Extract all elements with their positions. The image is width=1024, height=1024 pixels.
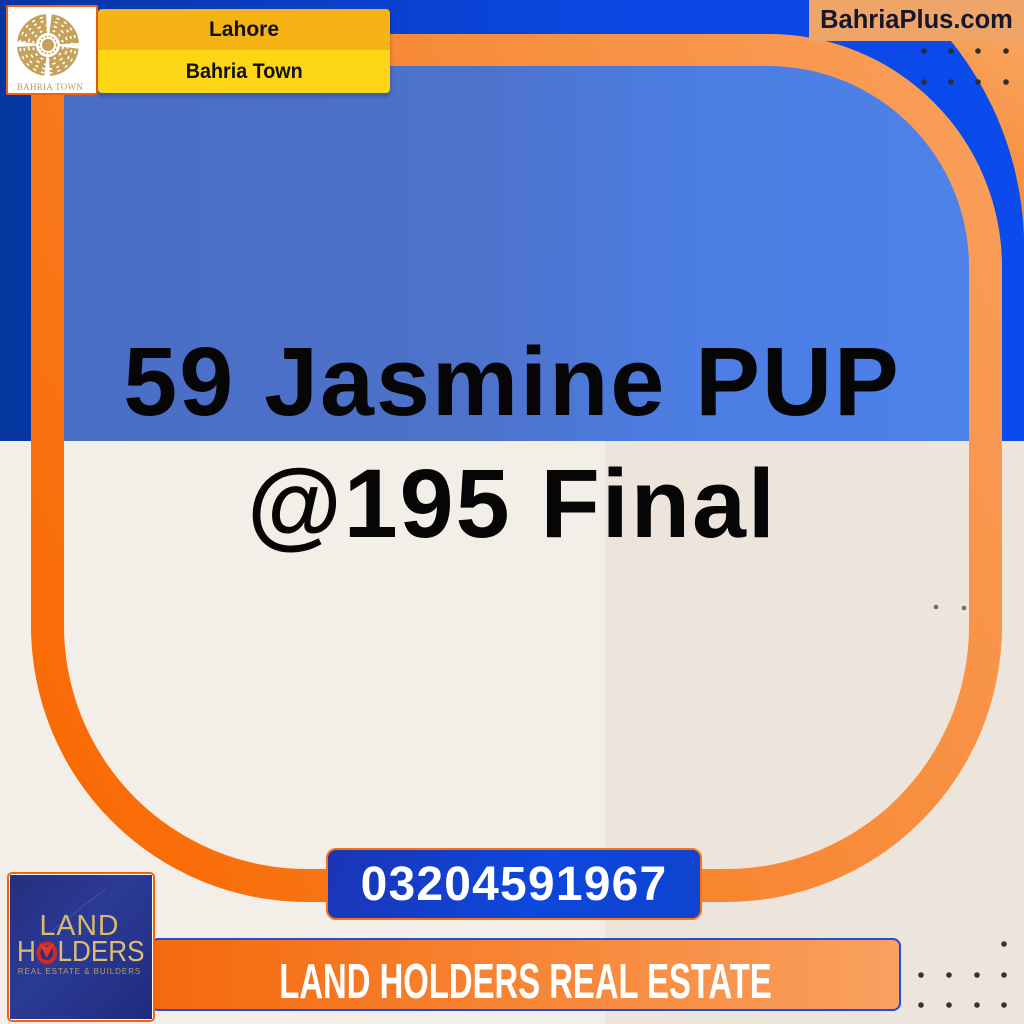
svg-text:BAHRIA TOWN: BAHRIA TOWN [17,82,83,92]
